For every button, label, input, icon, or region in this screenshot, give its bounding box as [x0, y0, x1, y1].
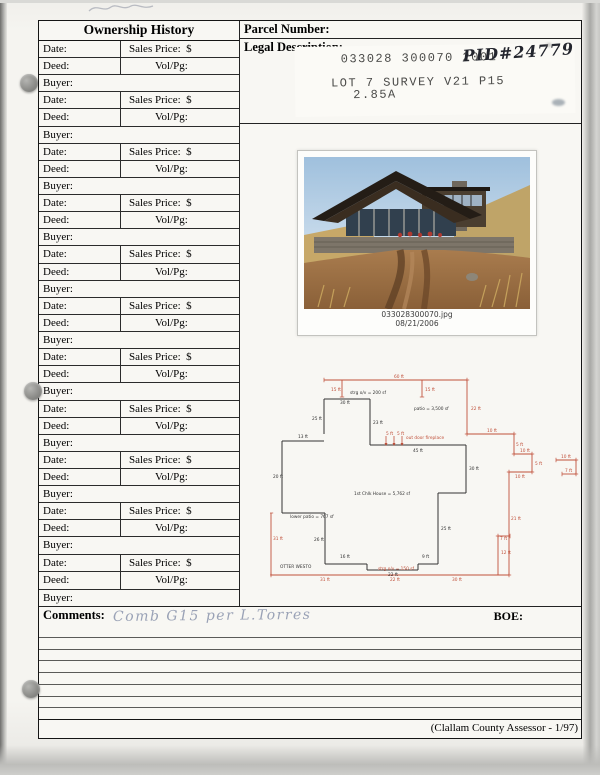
deed-volpg-row: Deed:Vol/Pg:	[39, 469, 239, 486]
stamp-acreage: 2.85A	[353, 88, 397, 103]
sales-price-field-label: Sales Price: $	[129, 454, 192, 466]
volpg-field-label: Vol/Pg:	[155, 317, 188, 329]
ownership-entry: Date:Sales Price: $Deed:Vol/Pg:Buyer:	[39, 503, 239, 554]
blank-line	[39, 685, 581, 697]
sketch-label: 16 ft	[340, 554, 350, 560]
volpg-field-label: Vol/Pg:	[155, 420, 188, 432]
sketch-label: 60 ft	[394, 374, 404, 380]
ownership-entry: Date:Sales Price: $Deed:Vol/Pg:Buyer:	[39, 246, 239, 297]
sketch-label: 21 ft	[511, 516, 521, 522]
sales-price-field-label: Sales Price: $	[129, 146, 192, 158]
sketch-label: 13 ft	[298, 434, 308, 440]
date-field-label: Date:	[43, 248, 67, 260]
sketch-label: 10 ft	[561, 454, 571, 460]
sales-price-field-label: Sales Price: $	[129, 557, 192, 569]
blank-line	[39, 626, 581, 638]
date-field: Date:	[39, 246, 121, 262]
parcel-panel: Parcel Number: Legal Description: 033028…	[240, 21, 581, 606]
ownership-entry: Date:Sales Price: $Deed:Vol/Pg:Buyer:	[39, 298, 239, 349]
sales-price-field: Sales Price: $	[121, 144, 239, 160]
date-sales-row: Date:Sales Price: $	[39, 246, 239, 263]
sales-price-field-label: Sales Price: $	[129, 300, 192, 312]
sales-price-field: Sales Price: $	[121, 92, 239, 108]
date-sales-row: Date:Sales Price: $	[39, 144, 239, 161]
ownership-entry: Date:Sales Price: $Deed:Vol/Pg:Buyer:	[39, 41, 239, 92]
date-field: Date:	[39, 41, 121, 57]
date-field: Date:	[39, 452, 121, 468]
deed-field-label: Deed:	[43, 317, 69, 329]
date-field: Date:	[39, 298, 121, 314]
deed-field-label: Deed:	[43, 60, 69, 72]
deed-volpg-row: Deed:Vol/Pg:	[39, 315, 239, 332]
sketch-label: 30 ft	[469, 466, 479, 472]
sales-price-field-label: Sales Price: $	[129, 505, 192, 517]
blank-line	[39, 638, 581, 650]
date-sales-row: Date:Sales Price: $	[39, 92, 239, 109]
date-field-label: Date:	[43, 454, 67, 466]
sketch-label: 22 ft	[471, 406, 481, 412]
buyer-field-label: Buyer:	[43, 75, 73, 91]
deed-field-label: Deed:	[43, 368, 69, 380]
sales-price-field: Sales Price: $	[121, 555, 239, 571]
volpg-field-label: Vol/Pg:	[155, 471, 188, 483]
volpg-field-label: Vol/Pg:	[155, 574, 188, 586]
sketch-label: 10 ft	[487, 428, 497, 434]
sales-price-field-label: Sales Price: $	[129, 403, 192, 415]
blank-line	[39, 708, 581, 719]
buyer-field-label: Buyer:	[43, 178, 73, 194]
form-footer: (Clallam County Assessor - 1/97)	[39, 719, 581, 738]
sketch-label: 31 ft	[320, 577, 330, 583]
buyer-field-label: Buyer:	[43, 383, 73, 399]
sketch-label: 30 ft	[340, 400, 350, 406]
date-field: Date:	[39, 503, 121, 519]
punch-hole-middle	[24, 382, 42, 400]
ownership-entry: Date:Sales Price: $Deed:Vol/Pg:Buyer:	[39, 349, 239, 400]
ink-smudge-small	[546, 43, 552, 47]
volpg-field: Vol/Pg:	[121, 212, 239, 228]
date-field: Date:	[39, 349, 121, 365]
sketch-label: 7 ft	[500, 536, 508, 542]
sketch-label: 31 ft	[273, 536, 283, 542]
deed-volpg-row: Deed:Vol/Pg:	[39, 161, 239, 178]
deed-field-label: Deed:	[43, 522, 69, 534]
volpg-field: Vol/Pg:	[121, 469, 239, 485]
volpg-field: Vol/Pg:	[121, 520, 239, 536]
sales-price-field: Sales Price: $	[121, 452, 239, 468]
ownership-entries: Date:Sales Price: $Deed:Vol/Pg:Buyer:Dat…	[39, 41, 239, 606]
parcel-stamp: 033028 300070 2001 PID#24779 LOT 7 SURVE…	[295, 43, 576, 117]
volpg-field-label: Vol/Pg:	[155, 266, 188, 278]
buyer-field: Buyer:	[39, 537, 239, 554]
blank-comment-lines	[39, 626, 581, 719]
buyer-field: Buyer:	[39, 178, 239, 195]
date-sales-row: Date:Sales Price: $	[39, 298, 239, 315]
date-field: Date:	[39, 195, 121, 211]
date-sales-row: Date:Sales Price: $	[39, 349, 239, 366]
date-sales-row: Date:Sales Price: $	[39, 555, 239, 572]
volpg-field-label: Vol/Pg:	[155, 111, 188, 123]
deed-field-label: Deed:	[43, 420, 69, 432]
deed-field-label: Deed:	[43, 471, 69, 483]
buyer-field: Buyer:	[39, 383, 239, 400]
punch-hole-top	[20, 74, 38, 92]
sketch-label: 5 ft	[397, 431, 405, 437]
buyer-field-label: Buyer:	[43, 229, 73, 245]
punch-hole-bottom	[22, 680, 40, 698]
sketch-label: OTTER WESTO	[280, 564, 312, 570]
ownership-entry: Date:Sales Price: $Deed:Vol/Pg:Buyer:	[39, 144, 239, 195]
sketch-label: 25 ft	[312, 416, 322, 422]
deed-volpg-row: Deed:Vol/Pg:	[39, 58, 239, 75]
date-sales-row: Date:Sales Price: $	[39, 452, 239, 469]
ownership-entry: Date:Sales Price: $Deed:Vol/Pg:Buyer:	[39, 452, 239, 503]
date-field-label: Date:	[43, 505, 67, 517]
ownership-entry: Date:Sales Price: $Deed:Vol/Pg:Buyer:	[39, 555, 239, 606]
deed-field: Deed:	[39, 315, 121, 331]
sketch-label: strg o/v = 200 sf	[350, 390, 386, 396]
date-sales-row: Date:Sales Price: $	[39, 401, 239, 418]
buyer-field: Buyer:	[39, 127, 239, 144]
date-field: Date:	[39, 555, 121, 571]
sketch-label: patio = 3,500 sf	[414, 406, 449, 412]
sketch-label: 9 ft	[422, 554, 430, 560]
ownership-entry: Date:Sales Price: $Deed:Vol/Pg:Buyer:	[39, 401, 239, 452]
scan-edge-left	[0, 0, 7, 775]
sketch-label: 20 ft	[273, 474, 283, 480]
sales-price-field: Sales Price: $	[121, 195, 239, 211]
comments-label: Comments:	[39, 607, 105, 623]
buyer-field: Buyer:	[39, 486, 239, 503]
sales-price-field: Sales Price: $	[121, 41, 239, 57]
scan-edge-bottom	[0, 745, 600, 775]
sales-price-field-label: Sales Price: $	[129, 43, 192, 55]
deed-field: Deed:	[39, 161, 121, 177]
sketch-label: 15 ft	[425, 387, 435, 393]
parcel-number-label: Parcel Number:	[240, 21, 581, 39]
deed-field: Deed:	[39, 418, 121, 434]
deed-field-label: Deed:	[43, 214, 69, 226]
ownership-history-table: Ownership History Date:Sales Price: $Dee…	[39, 21, 240, 606]
sales-price-field: Sales Price: $	[121, 298, 239, 314]
deed-field-label: Deed:	[43, 163, 69, 175]
deed-field-label: Deed:	[43, 111, 69, 123]
sketch-label: 1st Chlk House = 5,762 sf	[354, 491, 410, 497]
date-field-label: Date:	[43, 403, 67, 415]
deed-field: Deed:	[39, 58, 121, 74]
volpg-field-label: Vol/Pg:	[155, 163, 188, 175]
sketch-label: 10 ft	[520, 448, 530, 454]
date-field-label: Date:	[43, 94, 67, 106]
sketch-label: 25 ft	[441, 526, 451, 532]
buyer-field-label: Buyer:	[43, 590, 73, 606]
date-field-label: Date:	[43, 197, 67, 209]
volpg-field-label: Vol/Pg:	[155, 214, 188, 226]
deed-field-label: Deed:	[43, 266, 69, 278]
sales-price-field-label: Sales Price: $	[129, 351, 192, 363]
sketch-label: 30 ft	[452, 577, 462, 583]
sales-price-field-label: Sales Price: $	[129, 197, 192, 209]
date-field-label: Date:	[43, 300, 67, 312]
volpg-field: Vol/Pg:	[121, 161, 239, 177]
sketch-label: 10 ft	[515, 474, 525, 480]
deed-field: Deed:	[39, 264, 121, 280]
buyer-field: Buyer:	[39, 229, 239, 246]
media-area: 033028300070.jpg 08/21/2006 60 ft15 ft15…	[240, 124, 581, 608]
deed-field: Deed:	[39, 109, 121, 125]
date-sales-row: Date:Sales Price: $	[39, 195, 239, 212]
deed-field: Deed:	[39, 366, 121, 382]
volpg-field: Vol/Pg:	[121, 418, 239, 434]
sketch-label: strg o/v = 150 sf	[378, 566, 414, 572]
sales-price-field: Sales Price: $	[121, 503, 239, 519]
date-field-label: Date:	[43, 43, 67, 55]
deed-volpg-row: Deed:Vol/Pg:	[39, 212, 239, 229]
buyer-field: Buyer:	[39, 332, 239, 349]
deed-field: Deed:	[39, 520, 121, 536]
sales-price-field: Sales Price: $	[121, 401, 239, 417]
volpg-field: Vol/Pg:	[121, 315, 239, 331]
deed-field-label: Deed:	[43, 574, 69, 586]
photo-filename: 033028300070.jpg	[298, 310, 536, 319]
blank-line	[39, 650, 581, 662]
blank-line	[39, 673, 581, 685]
buyer-field-label: Buyer:	[43, 537, 73, 553]
sketch-label: 5 ft	[535, 461, 543, 467]
date-sales-row: Date:Sales Price: $	[39, 503, 239, 520]
deed-field: Deed:	[39, 572, 121, 588]
photo-date: 08/21/2006	[298, 319, 536, 328]
comments-handwritten: Comb G15 per L.Torres	[113, 605, 494, 625]
ownership-entry: Date:Sales Price: $Deed:Vol/Pg:Buyer:	[39, 195, 239, 246]
volpg-field: Vol/Pg:	[121, 366, 239, 382]
volpg-field: Vol/Pg:	[121, 572, 239, 588]
property-photo-image	[304, 157, 530, 309]
deed-volpg-row: Deed:Vol/Pg:	[39, 572, 239, 589]
sketch-label: 5 ft	[386, 431, 394, 437]
deed-volpg-row: Deed:Vol/Pg:	[39, 109, 239, 126]
boe-label: BOE:	[494, 607, 581, 624]
sketch-label: 15 ft	[331, 387, 341, 393]
comments-section: Comments: Comb G15 per L.Torres BOE:	[39, 606, 581, 627]
buyer-field: Buyer:	[39, 75, 239, 92]
deed-volpg-row: Deed:Vol/Pg:	[39, 520, 239, 537]
sales-price-field: Sales Price: $	[121, 349, 239, 365]
volpg-field: Vol/Pg:	[121, 109, 239, 125]
scan-edge-top	[0, 0, 600, 3]
ownership-history-title: Ownership History	[39, 21, 239, 41]
sketch-label: 23 ft	[373, 420, 383, 426]
volpg-field: Vol/Pg:	[121, 264, 239, 280]
ink-smudge	[552, 99, 565, 106]
buyer-field: Buyer:	[39, 435, 239, 452]
date-field: Date:	[39, 401, 121, 417]
volpg-field: Vol/Pg:	[121, 58, 239, 74]
buyer-field: Buyer:	[39, 281, 239, 298]
scan-edge-right	[582, 0, 600, 775]
sketch-label: 7 ft	[565, 468, 573, 474]
sketch-label: lower patio = 767 sf	[290, 514, 334, 520]
date-field: Date:	[39, 144, 121, 160]
buyer-field-label: Buyer:	[43, 281, 73, 297]
pid-handwritten: PID#24779	[462, 39, 574, 65]
floorplan-sketch: 60 ft15 ft15 ft22 ft10 ft5 ft10 ft5 ft10…	[270, 368, 580, 603]
buyer-field: Buyer:	[39, 590, 239, 606]
blank-line	[39, 697, 581, 709]
ownership-entry: Date:Sales Price: $Deed:Vol/Pg:Buyer:	[39, 92, 239, 143]
blank-line	[39, 661, 581, 673]
volpg-field-label: Vol/Pg:	[155, 368, 188, 380]
sketch-label: out door fireplace	[406, 435, 444, 441]
scanned-assessor-record: { "ownership_table": { "title": "Ownersh…	[0, 0, 600, 775]
property-photo: 033028300070.jpg 08/21/2006	[297, 150, 537, 336]
buyer-field-label: Buyer:	[43, 435, 73, 451]
volpg-field-label: Vol/Pg:	[155, 522, 188, 534]
sales-price-field-label: Sales Price: $	[129, 94, 192, 106]
date-field-label: Date:	[43, 557, 67, 569]
date-field-label: Date:	[43, 146, 67, 158]
sales-price-field: Sales Price: $	[121, 246, 239, 262]
date-field-label: Date:	[43, 351, 67, 363]
sketch-label: 5 ft	[516, 442, 524, 448]
date-field: Date:	[39, 92, 121, 108]
sketch-label: 45 ft	[413, 448, 423, 454]
buyer-field-label: Buyer:	[43, 332, 73, 348]
deed-field: Deed:	[39, 212, 121, 228]
buyer-field-label: Buyer:	[43, 127, 73, 143]
record-form: Ownership History Date:Sales Price: $Dee…	[38, 20, 582, 739]
sketch-label: 12 ft	[501, 550, 511, 556]
buyer-field-label: Buyer:	[43, 486, 73, 502]
date-sales-row: Date:Sales Price: $	[39, 41, 239, 58]
legal-description-section: Legal Description: 033028 300070 2001 PI…	[240, 39, 581, 124]
volpg-field-label: Vol/Pg:	[155, 60, 188, 72]
deed-volpg-row: Deed:Vol/Pg:	[39, 264, 239, 281]
deed-field: Deed:	[39, 469, 121, 485]
deed-volpg-row: Deed:Vol/Pg:	[39, 418, 239, 435]
sketch-label: 26 ft	[314, 537, 324, 543]
sketch-label: 22 ft	[388, 572, 398, 578]
deed-volpg-row: Deed:Vol/Pg:	[39, 366, 239, 383]
sales-price-field-label: Sales Price: $	[129, 248, 192, 260]
